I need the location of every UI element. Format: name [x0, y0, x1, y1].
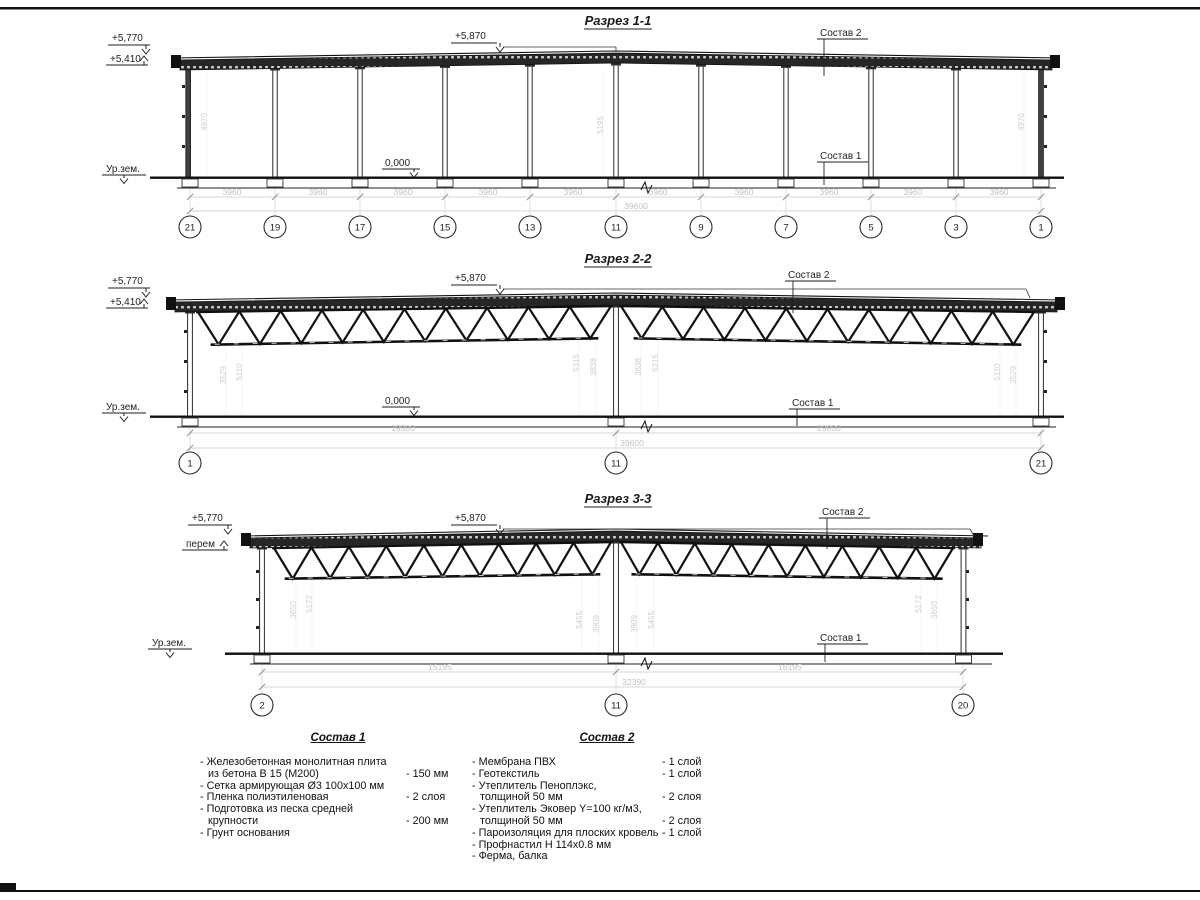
truss-right — [619, 306, 1036, 345]
elevation-label: +5,770 — [112, 33, 143, 44]
grid-bubble: 3 — [953, 223, 958, 234]
grid-bubble: 7 — [783, 223, 788, 234]
total-dim: 39600 — [624, 201, 648, 211]
leader-label-floor: Состав 1 — [820, 151, 862, 162]
svg-text:4970: 4970 — [1017, 113, 1026, 131]
elevation-label: 0,000 — [385, 396, 410, 407]
ground-level-label: Ур.зем. — [106, 402, 140, 413]
span-dim: 3960 — [394, 187, 413, 197]
truss-left — [196, 306, 613, 345]
svg-text:3838: 3838 — [634, 358, 643, 376]
elevation-label: +5,770 — [112, 276, 143, 287]
grid-bubble: 1 — [1038, 223, 1043, 234]
break-symbol — [641, 658, 652, 669]
leader-label-roof: Состав 2 — [822, 507, 864, 518]
elevation-label: +5,870 — [455, 31, 486, 42]
floor-slab — [150, 416, 1064, 433]
grid-bubble: 21 — [185, 223, 196, 234]
leader-notes: Состав 2 Состав 1 — [817, 507, 870, 662]
list-item: - Пароизоляция для плоских кровель- 1 сл… — [472, 828, 742, 840]
leader-notes: Состав 2 Состав 1 — [817, 28, 868, 185]
truss-left — [272, 542, 613, 579]
grid-bubble: 11 — [611, 459, 621, 470]
elevation-marks: +5,770 +5,410 +5,870 0,000 Ур.зем. — [102, 273, 1030, 422]
grid-bubble: 15 — [440, 223, 451, 234]
elevation-label: +5,410 — [110, 297, 141, 308]
svg-text:5172: 5172 — [914, 595, 923, 613]
grid-bubbles: 1 11 21 — [179, 452, 1052, 474]
svg-text:5315: 5315 — [651, 354, 660, 372]
elevation-label: 0,000 — [385, 158, 410, 169]
leader-label-floor: Состав 1 — [820, 633, 862, 644]
elevation-label: +5,870 — [455, 513, 486, 524]
span-dim: 3960 — [479, 187, 498, 197]
span-dim: 3960 — [564, 187, 583, 197]
leader-label-floor: Состав 1 — [792, 398, 834, 409]
leader-notes: Состав 2 Состав 1 — [785, 270, 840, 426]
section-1-1: Разрез 1-1 — [102, 13, 1064, 238]
grid-bubble: 17 — [355, 223, 366, 234]
total-dim: 39600 — [620, 438, 644, 448]
composition-1: Состав 1 - Железобетонная монолитная пли… — [200, 732, 476, 840]
dimension-lines: 16195 16195 32390 — [259, 662, 966, 694]
grid-bubble: 9 — [698, 223, 703, 234]
span-dim: 16195 — [428, 662, 452, 672]
section-title: Разрез 1-1 — [585, 13, 652, 28]
composition-2-title: Состав 2 — [472, 732, 742, 744]
grid-bubble: 20 — [958, 701, 969, 712]
section-title: Разрез 2-2 — [585, 251, 653, 266]
span-dim: 3960 — [904, 187, 923, 197]
span-dim: 16195 — [778, 662, 802, 672]
list-item: крупности- 200 мм — [200, 816, 476, 828]
grid-bubbles: 2 11 20 — [251, 694, 974, 716]
section-title: Разрез 3-3 — [585, 491, 653, 506]
svg-text:5195: 5195 — [596, 116, 605, 134]
grid-bubble: 11 — [611, 701, 621, 712]
height-dims: 4970 5195 4970 — [200, 113, 1026, 134]
svg-text:3838: 3838 — [589, 358, 598, 376]
span-dim: 3960 — [990, 187, 1009, 197]
svg-text:3529: 3529 — [1009, 366, 1018, 384]
grid-bubble: 21 — [1036, 459, 1047, 470]
svg-text:5455: 5455 — [647, 611, 656, 629]
svg-text:3909: 3909 — [592, 615, 601, 633]
span-dim: 3960 — [820, 187, 839, 197]
section-2-2: Разрез 2-2 — [102, 251, 1065, 474]
list-item: толщиной 50 мм- 2 слоя — [472, 816, 742, 828]
dimension-lines: 3960 3960 3960 3960 3960 3960 3960 3960 … — [187, 187, 1044, 216]
span-dim: 3960 — [735, 187, 754, 197]
columns — [256, 536, 969, 654]
svg-text:5315: 5315 — [572, 354, 581, 372]
grid-bubble: 2 — [259, 701, 264, 712]
elevation-label: перем — [186, 539, 215, 550]
span-dim: 19800 — [391, 423, 415, 433]
list-item: - Ферма, балка — [472, 851, 742, 863]
drawing-sheet: Разрез 1-1 — [0, 0, 1200, 900]
grid-bubble: 19 — [270, 223, 281, 234]
composition-1-title: Состав 1 — [200, 732, 476, 744]
total-dim: 32390 — [622, 677, 646, 687]
list-item: из бетона В 15 (М200)- 150 мм — [200, 769, 476, 781]
grid-bubble: 13 — [525, 223, 536, 234]
ground-level-label: Ур.зем. — [152, 638, 186, 649]
span-dim: 3960 — [309, 187, 328, 197]
grid-bubbles: 21 19 17 15 13 11 9 7 5 3 1 — [179, 216, 1052, 238]
elevation-label: +5,410 — [110, 54, 141, 65]
span-dim: 3960 — [223, 187, 242, 197]
composition-2: Состав 2 - Мембрана ПВХ- 1 слой - Геотек… — [472, 732, 742, 863]
height-dim-extension-lines — [226, 346, 1016, 415]
svg-text:3529: 3529 — [219, 366, 228, 384]
svg-text:5455: 5455 — [575, 611, 584, 629]
columns — [184, 300, 1047, 417]
ground-level-label: Ур.зем. — [106, 164, 140, 175]
svg-text:3650: 3650 — [289, 601, 298, 619]
list-item: - Геотекстиль- 1 слой — [472, 769, 742, 781]
svg-text:5110: 5110 — [235, 363, 244, 381]
elevation-label: +5,870 — [455, 273, 486, 284]
grid-bubble: 1 — [187, 459, 192, 470]
truss-right — [619, 542, 955, 579]
elevation-label: +5,770 — [192, 513, 223, 524]
grid-bubble: 11 — [611, 223, 621, 234]
svg-text:5110: 5110 — [993, 363, 1002, 381]
svg-text:3650: 3650 — [930, 601, 939, 619]
section-3-3: Разрез 3-3 — [148, 491, 1003, 716]
leader-label-roof: Состав 2 — [788, 270, 830, 281]
list-item: - Грунт основания — [200, 828, 476, 840]
svg-text:5172: 5172 — [305, 595, 314, 613]
leader-label-roof: Состав 2 — [820, 28, 862, 39]
break-symbol — [641, 421, 652, 432]
svg-text:3909: 3909 — [630, 615, 639, 633]
span-dim: 19800 — [817, 423, 841, 433]
floor-slab — [225, 653, 1003, 670]
svg-text:4970: 4970 — [200, 113, 209, 131]
span-dim: 3960 — [649, 187, 668, 197]
floor-slab — [150, 177, 1064, 194]
grid-bubble: 5 — [868, 223, 873, 234]
